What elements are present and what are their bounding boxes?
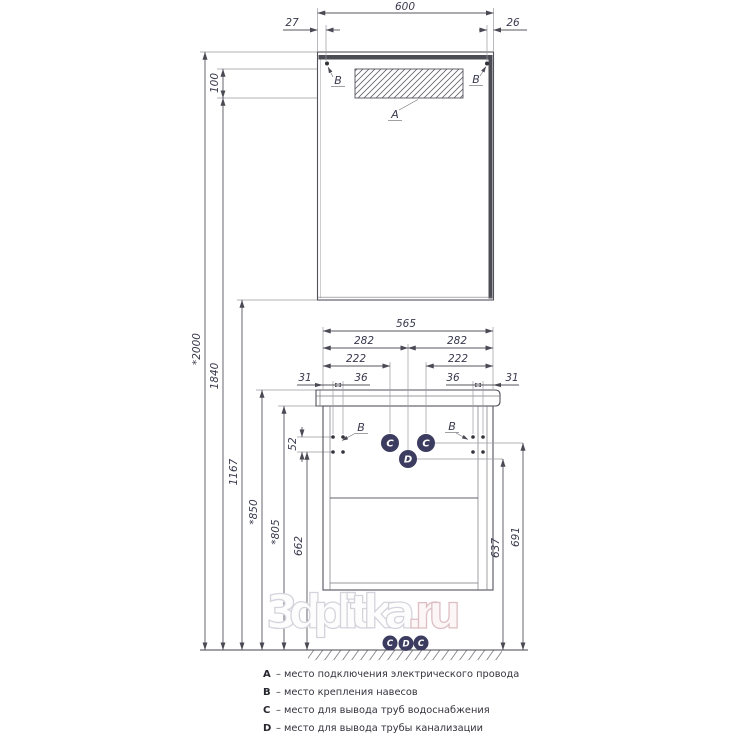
dim-counter-bottom-height: *805	[270, 519, 282, 545]
water-outlet-marker: C	[417, 434, 435, 452]
floor: C D C	[200, 636, 528, 661]
dim-mount-height: 662	[293, 536, 305, 556]
mirror-cabinet	[318, 52, 494, 300]
dim-mirror-bottom-height: 1167	[228, 458, 240, 485]
dim-mount-spacing-left: 36	[354, 372, 368, 384]
legend-key-b: B	[263, 687, 271, 698]
dim-pipe-offset-left: 222	[346, 353, 366, 365]
dimensions-left: *2000 100 1840 1167 *850 *805 662 52	[191, 52, 333, 650]
dim-lamp-bottom-height: 1840	[209, 362, 221, 389]
lamp-area	[355, 69, 463, 98]
label-lamp-area: A	[390, 108, 399, 121]
dim-water-height: 691	[510, 527, 522, 547]
dim-total-height: *2000	[191, 333, 203, 365]
furniture-dimension-drawing: 600 27 26 *2000 100 1840 1167 *850 *805 …	[0, 0, 734, 734]
legend-key-a: A	[263, 669, 271, 680]
floor-water-letter: C	[418, 639, 425, 649]
dim-counter-top-height: *850	[248, 499, 260, 525]
technical-drawing-page: 600 27 26 *2000 100 1840 1167 *850 *805 …	[0, 0, 734, 734]
watermark-name: 3dplitka	[266, 585, 416, 639]
water-outlet-marker: C	[381, 434, 399, 452]
dim-vanity-half-left: 282	[354, 335, 374, 347]
legend-text-b: – место крепления навесов	[276, 687, 418, 698]
dim-mount-edge-right: 31	[505, 372, 518, 384]
legend: A – место подключения электрического про…	[263, 669, 519, 734]
legend-key-c: C	[263, 705, 270, 716]
callout-labels: B B A B B	[328, 67, 486, 441]
legend-text-a: – место подключения электрического прово…	[276, 669, 519, 680]
mirror-door-edge	[489, 60, 493, 299]
drain-outlet-letter: D	[404, 455, 412, 466]
dim-vanity-width: 565	[396, 318, 416, 330]
label-mirror-mount-left: B	[334, 74, 342, 87]
mount-point-dot	[325, 62, 329, 66]
dim-lamp-height: 100	[209, 73, 221, 93]
label-vanity-mount-left: B	[357, 421, 365, 434]
floor-drain-letter: D	[402, 640, 409, 650]
dim-vanity-half-right: 282	[447, 335, 467, 347]
mount-point-dot	[485, 62, 489, 66]
water-outlet-letter: C	[422, 439, 430, 450]
dim-pipe-offset-right: 222	[448, 353, 468, 365]
floor-water-letter: C	[387, 639, 394, 649]
legend-text-c: – место для вывода труб водоснабжения	[276, 705, 490, 716]
dim-mirror-width: 600	[395, 1, 415, 13]
dim-mount-vertical-spacing: 52	[287, 437, 299, 451]
drain-outlet-marker: D	[399, 450, 417, 468]
dim-mount-edge-left: 31	[298, 372, 311, 384]
water-outlet-letter: C	[386, 439, 394, 450]
legend-text-d: – место для вывода трубы канализации	[276, 723, 483, 734]
dim-mirror-offset-left: 27	[285, 17, 299, 29]
dim-drain-height: 637	[490, 538, 502, 558]
dim-mirror-offset-right: 26	[506, 17, 520, 29]
label-mirror-mount-right: B	[472, 73, 480, 86]
floor-hatching	[308, 651, 502, 661]
watermark: 3dplitka.ru	[266, 585, 462, 639]
watermark-tld: .ru	[406, 585, 462, 639]
mirror-light-strip	[319, 55, 493, 60]
legend-key-d: D	[263, 723, 271, 734]
watermark-text: 3dplitka.ru	[266, 585, 462, 639]
dim-mount-spacing-right: 36	[446, 372, 460, 384]
label-vanity-mount-right: B	[448, 420, 456, 433]
